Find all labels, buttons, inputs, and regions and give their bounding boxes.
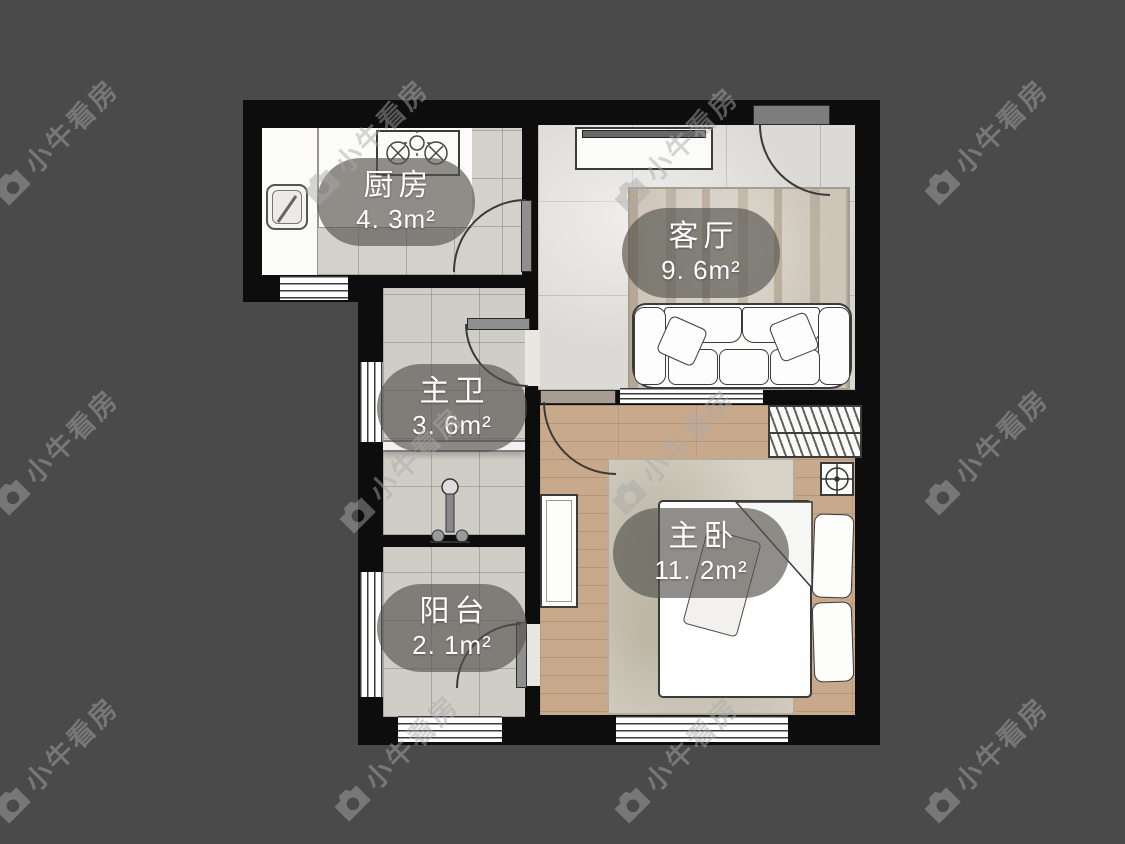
bed-pillow	[812, 601, 855, 682]
room-name: 阳台	[415, 594, 490, 630]
watermark: 小牛看房	[914, 687, 1057, 830]
camera-logo-icon	[0, 159, 36, 210]
bedroom-door-leaf	[540, 390, 616, 404]
tv-cabinet	[575, 127, 713, 170]
watermark-text: 小牛看房	[14, 687, 126, 799]
entry-door-leaf	[753, 105, 830, 125]
watermark: 小牛看房	[0, 69, 126, 212]
bathroom-door-leaf	[467, 318, 530, 330]
ac-unit-symbol	[820, 462, 854, 496]
room-label-balcony: 阳台 2. 1m²	[377, 584, 527, 672]
tv-icon	[582, 130, 706, 138]
room-label-kitchen: 厨房 4. 3m²	[317, 158, 475, 246]
room-name: 主卫	[415, 374, 490, 410]
room-name: 主卧	[664, 519, 739, 555]
camera-logo-icon	[0, 777, 36, 828]
room-name: 厨房	[359, 168, 434, 204]
room-area: 11. 2m²	[654, 555, 747, 586]
balcony-door-opening	[525, 624, 540, 686]
sofa-armrest	[818, 307, 850, 385]
watermark-text: 小牛看房	[944, 379, 1056, 491]
bedroom-window-bottom	[616, 716, 788, 742]
bathroom-door-opening	[525, 330, 540, 386]
sink-icon	[266, 184, 308, 230]
living-bedroom-threshold	[620, 388, 763, 404]
room-area: 3. 6m²	[412, 410, 492, 441]
room-label-bedroom: 主卧 11. 2m²	[613, 508, 789, 598]
room-name: 客厅	[664, 219, 739, 255]
room-area: 2. 1m²	[412, 630, 492, 661]
room-area: 4. 3m²	[356, 204, 436, 235]
sofa	[632, 303, 852, 389]
floorplan-canvas: 厨房 4. 3m² 客厅 9. 6m² 主卫 3. 6m² 主卧 11. 2m²…	[0, 0, 1125, 844]
watermark: 小牛看房	[0, 687, 126, 830]
kitchen-exterior-window	[280, 276, 348, 300]
bedroom-desk	[540, 494, 578, 608]
camera-logo-icon	[605, 777, 656, 828]
camera-logo-icon	[915, 469, 966, 520]
watermark-text: 小牛看房	[14, 379, 126, 491]
sofa-seat-cushion	[719, 349, 769, 385]
camera-logo-icon	[915, 159, 966, 210]
watermark-text: 小牛看房	[944, 69, 1056, 181]
watermark-text: 小牛看房	[14, 69, 126, 181]
camera-logo-icon	[915, 777, 966, 828]
room-label-living-room: 客厅 9. 6m²	[622, 208, 780, 298]
kitchen-door-leaf	[521, 200, 532, 272]
bed-pillow	[812, 513, 855, 598]
watermark-text: 小牛看房	[944, 687, 1056, 799]
camera-logo-icon	[0, 469, 36, 520]
room-area: 9. 6m²	[661, 255, 741, 286]
room-label-bathroom: 主卫 3. 6m²	[377, 364, 527, 452]
watermark: 小牛看房	[914, 69, 1057, 212]
camera-logo-icon	[325, 775, 376, 826]
watermark: 小牛看房	[914, 379, 1057, 522]
wardrobe	[768, 405, 862, 458]
balcony-window-bottom	[398, 716, 502, 742]
watermark: 小牛看房	[0, 379, 126, 522]
